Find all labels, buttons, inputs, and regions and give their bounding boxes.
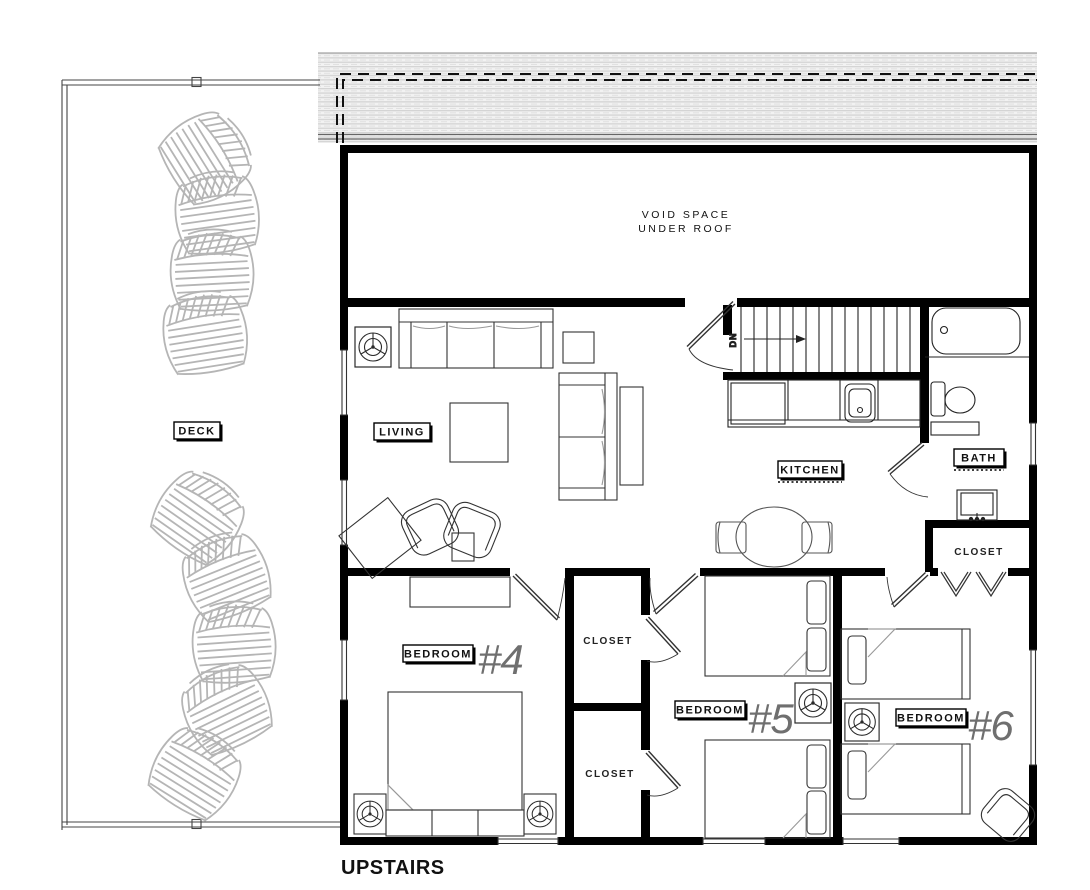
closet-bifold-doors — [941, 572, 1006, 596]
bath-label-box: BATH — [954, 449, 1007, 470]
deck-chair — [152, 100, 265, 213]
dresser — [410, 577, 510, 607]
bedroom5-number: #5 — [748, 695, 794, 742]
club-chair — [397, 495, 463, 560]
kitchen — [728, 380, 920, 427]
kitchen-label: KITCHEN — [780, 465, 839, 477]
club-chair — [440, 498, 504, 561]
bedroom5-door — [650, 574, 698, 615]
loveseat — [559, 373, 643, 500]
roof-overhang — [318, 52, 1037, 143]
bed-full — [705, 740, 830, 838]
deck-chair — [142, 458, 256, 572]
bathtub — [932, 308, 1020, 354]
headboard — [386, 810, 524, 836]
closet-bottom-door — [646, 751, 681, 796]
bedroom4 — [354, 577, 556, 836]
end-table — [563, 332, 594, 363]
bedroom4-label: BEDROOM — [404, 649, 472, 661]
bedroom6-door — [887, 573, 928, 608]
window — [843, 837, 899, 845]
sofa-table — [620, 387, 643, 485]
bedroom5-label: BEDROOM — [676, 705, 744, 717]
ceiling-fan — [355, 327, 391, 367]
deck-label: DECK — [178, 426, 215, 438]
bedroom4-door — [513, 574, 565, 620]
sofa — [399, 309, 553, 368]
walls — [340, 145, 1037, 845]
kitchen-sink — [845, 384, 875, 422]
dining-chair — [716, 522, 746, 553]
bed-twin — [841, 744, 970, 814]
deck-chairs — [140, 100, 281, 828]
bedroom4-label-box: BEDROOM #4 — [403, 636, 523, 683]
closet-top-label: CLOSET — [583, 636, 633, 647]
bed-queen — [386, 692, 524, 836]
refrigerator — [731, 383, 785, 424]
bedroom6-label: BEDROOM — [897, 713, 965, 725]
closet-bath-label: CLOSET — [954, 547, 1004, 558]
bath-shelf — [931, 422, 979, 435]
bath-vanity-sink — [957, 490, 997, 521]
deck-chair — [158, 286, 253, 379]
bath-door — [888, 443, 928, 498]
closet-bottom-label: CLOSET — [585, 769, 635, 780]
roof-hatch — [318, 52, 1037, 143]
bed-twin — [841, 629, 970, 699]
bath — [925, 308, 1029, 521]
side-table — [452, 533, 474, 561]
deck-chair — [171, 653, 281, 762]
window — [498, 837, 558, 845]
deck-chair — [170, 166, 263, 258]
nightstand — [524, 794, 556, 834]
living-room — [339, 309, 643, 578]
ottoman — [339, 498, 421, 579]
coffee-table — [450, 403, 508, 462]
bath-label: BATH — [961, 453, 997, 465]
bedroom4-number: #4 — [478, 636, 523, 683]
window — [340, 350, 348, 415]
dining-chair — [802, 522, 832, 553]
bedroom5-label-box: BEDROOM #5 — [675, 695, 794, 742]
bathtub-drain — [941, 327, 948, 334]
ceiling-fan — [795, 683, 831, 723]
floor-title: UPSTAIRS — [341, 857, 445, 879]
bedroom6-label-box: BEDROOM #6 — [896, 702, 1014, 749]
lounge-corner — [339, 495, 504, 579]
deck-rail-top — [62, 80, 320, 85]
window — [340, 640, 348, 700]
windows — [340, 350, 1037, 845]
room-labels: DECK LIVING KITCHEN BATH BEDROOM #4 — [174, 209, 1014, 780]
stairs: DN — [728, 307, 910, 372]
toilet — [931, 382, 975, 416]
void-space-label-line1: VOID SPACE — [642, 209, 730, 221]
living-label: LIVING — [379, 427, 425, 439]
stairs-dn-label: DN — [728, 333, 738, 348]
deck-rail-left — [62, 80, 67, 830]
deck-label-box: DECK — [174, 422, 223, 442]
dining-set — [716, 507, 832, 567]
deck-rail-bottom — [62, 822, 345, 827]
living-label-box: LIVING — [374, 423, 433, 443]
nightstand — [354, 794, 386, 834]
window — [1029, 423, 1037, 465]
void-space-label-line2: UNDER ROOF — [638, 223, 734, 235]
closet-top-door — [646, 617, 681, 662]
floor-plan: DN — [0, 0, 1090, 890]
window — [1029, 650, 1037, 765]
ceiling-fan — [845, 703, 879, 741]
dining-table — [736, 507, 812, 567]
bed-full — [705, 576, 830, 676]
deck-chair — [140, 715, 253, 828]
window — [340, 480, 348, 545]
bedroom6-number: #6 — [968, 702, 1014, 749]
kitchen-label-box: KITCHEN — [778, 461, 845, 482]
